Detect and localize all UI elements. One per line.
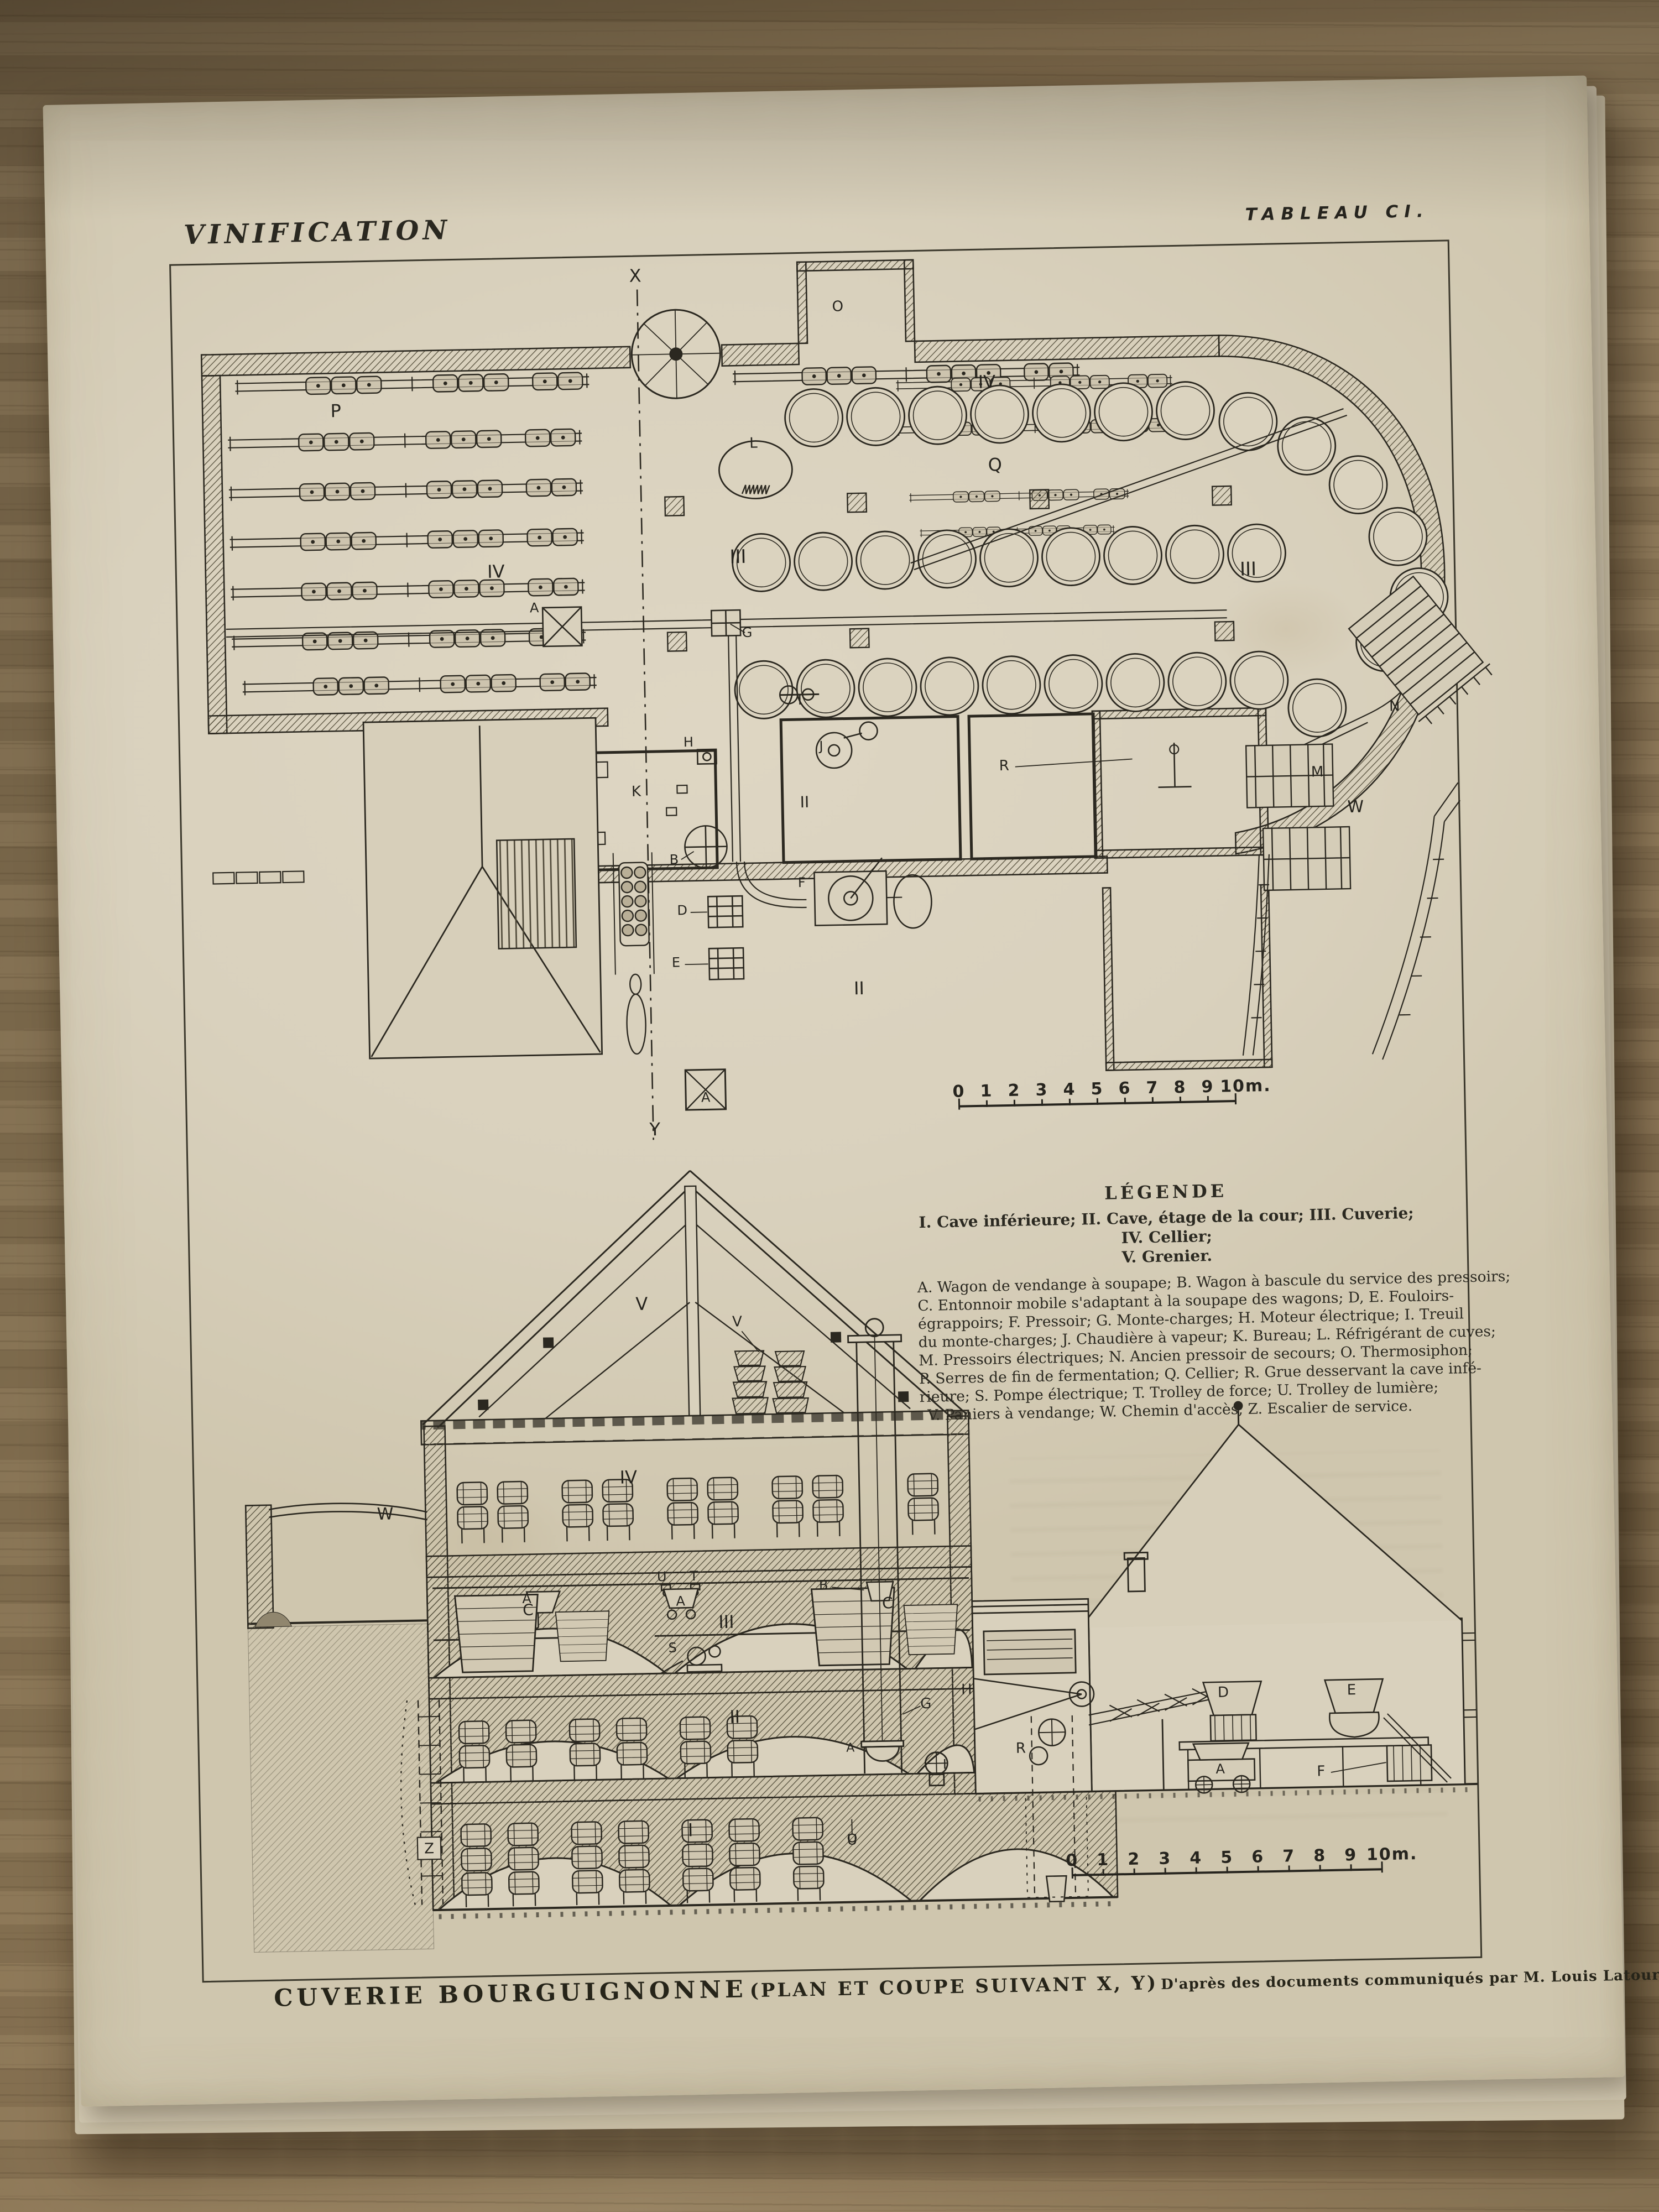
- drawing-label-S: S: [668, 1640, 677, 1656]
- drawing-label-III: III: [718, 1611, 734, 1633]
- scale-tick-label: 9: [1344, 1845, 1358, 1865]
- drawing-label-K: K: [632, 784, 642, 800]
- drawing-label-II: II: [729, 1706, 740, 1727]
- drawing-label-U: U: [657, 1569, 667, 1584]
- drawing-label-B: B: [819, 1577, 828, 1593]
- drawing-label-V: V: [732, 1313, 743, 1330]
- drawing-label-G: G: [920, 1695, 932, 1712]
- drawing-label-C: C: [523, 1601, 534, 1619]
- drawing-label-Z: Z: [424, 1840, 434, 1857]
- machines-cluster: [542, 601, 933, 983]
- scale-tick-label: 4: [1190, 1848, 1203, 1867]
- drawing-label-O: O: [832, 298, 843, 315]
- roof-truss: [418, 1166, 967, 1428]
- drawing-label-II: II: [800, 793, 809, 811]
- drawing-label-W: W: [1347, 797, 1364, 817]
- drawing-label-C: C: [882, 1594, 893, 1612]
- scale-tick-label: 2: [1128, 1850, 1141, 1869]
- plan-drawing: XOPIVQIIIIIILNMIVAGIHJKRIIWBDFEIIAY: [169, 239, 1467, 1185]
- drawing-label-E: E: [672, 954, 681, 970]
- plate-number: TABLEAU CI.: [1245, 201, 1455, 225]
- scale-tick-label: 2: [1008, 1081, 1021, 1100]
- drawing-label-H: H: [961, 1681, 972, 1698]
- drawing-label-A: A: [701, 1089, 711, 1105]
- drawing-label-L: L: [749, 435, 758, 451]
- drawing-label-W: W: [377, 1504, 393, 1524]
- drawing-label-II: II: [854, 978, 865, 999]
- drawing-label-D: D: [1218, 1684, 1229, 1700]
- drawing-label-E: E: [1347, 1682, 1356, 1698]
- scale-tick-label: 7: [1146, 1078, 1159, 1098]
- scale-tick-label: 7: [1282, 1846, 1296, 1866]
- legend-items: A. Wagon de vendange à soupape; B. Wagon…: [917, 1269, 1421, 1425]
- drawing-label-R: R: [1016, 1740, 1026, 1757]
- drawing-label-I: I: [688, 1819, 693, 1840]
- drawing-label-M: M: [1311, 764, 1324, 780]
- fermentation-vats: [663, 377, 1451, 749]
- drawing-label-V: V: [635, 1293, 648, 1314]
- scale-tick-label: 3: [1159, 1849, 1172, 1869]
- drawing-label-IV: IV: [619, 1467, 637, 1488]
- scale-end-label: 10m.: [1366, 1844, 1418, 1865]
- ramp-stairs: [497, 839, 576, 949]
- scale-tick-label: 1: [980, 1081, 993, 1100]
- drawing-label-N: N: [1389, 698, 1400, 714]
- spiral-staircase: [631, 309, 721, 399]
- drawing-label-X: X: [629, 265, 641, 286]
- drawing-label-B: B: [669, 852, 679, 867]
- scale-tick-label: 1: [1097, 1850, 1110, 1870]
- drawing-label-Q: Q: [988, 454, 1002, 475]
- caption-credit: D'après des documents communiqués par M.…: [1161, 1963, 1659, 1993]
- scale-tick-label: 5: [1220, 1848, 1234, 1867]
- drawing-label-IV: IV: [487, 561, 505, 582]
- drawing-label-R: R: [999, 758, 1009, 774]
- drawing-label-A: A: [846, 1741, 855, 1755]
- photograph-of-plate: VINIFICATION TABLEAU CI.: [0, 0, 1659, 2212]
- scale-tick-label: 6: [1251, 1847, 1265, 1866]
- scale-tick-label: 8: [1173, 1078, 1187, 1097]
- harvest-baskets: [731, 1330, 808, 1414]
- drawing-label-D: D: [677, 902, 687, 918]
- drawing-label-IV: IV: [978, 371, 995, 393]
- drawing-label-F: F: [798, 875, 806, 890]
- scale-tick-label: 3: [1035, 1081, 1048, 1100]
- drawing-label-Y: Y: [649, 1119, 661, 1140]
- drawing-label-U: U: [847, 1832, 858, 1848]
- plan-scale-bar: 012345678910m.: [959, 1077, 1236, 1118]
- drawing-label-A: A: [530, 600, 540, 615]
- scale-end-label: 10m.: [1220, 1076, 1271, 1097]
- drawing-label-F: F: [1317, 1763, 1326, 1780]
- caption-title: CUVERIE BOURGUIGNONNE: [274, 1975, 747, 2012]
- scale-tick-label: 5: [1091, 1079, 1104, 1099]
- drawing-label-III: III: [729, 546, 747, 568]
- drawing-label-III: III: [1240, 558, 1257, 581]
- scale-tick-label: 9: [1201, 1077, 1214, 1097]
- drawing-label-I: I: [798, 692, 802, 708]
- scale-tick-label: 6: [1118, 1079, 1131, 1098]
- cellier-IV-barrels: [457, 1474, 938, 1544]
- page-title: VINIFICATION: [184, 215, 451, 251]
- section-scale-bar: 012345678910m.: [1072, 1845, 1382, 1886]
- drawing-label-G: G: [742, 625, 752, 640]
- scale-tick-label: 8: [1313, 1846, 1327, 1865]
- scale-tick-label: 4: [1063, 1080, 1076, 1099]
- drawing-label-P: P: [330, 400, 341, 421]
- legend-block: LÉGENDE I. Cave inférieure; II. Cave, ét…: [915, 1177, 1420, 1425]
- drawing-label-J: J: [818, 738, 823, 754]
- drawing-label-A: A: [1215, 1761, 1225, 1777]
- section-axis-XY: [637, 288, 727, 1140]
- drawing-label-A: A: [676, 1593, 686, 1609]
- drawing-label-I: I: [943, 1756, 947, 1772]
- drawing-label-T: T: [689, 1568, 698, 1584]
- plate-page: VINIFICATION TABLEAU CI.: [43, 76, 1625, 2107]
- caption-subtitle: (PLAN ET COUPE SUIVANT X, Y): [749, 1972, 1158, 2002]
- drawing-label-H: H: [684, 734, 694, 750]
- attic-floor-dentils: [421, 1410, 969, 1444]
